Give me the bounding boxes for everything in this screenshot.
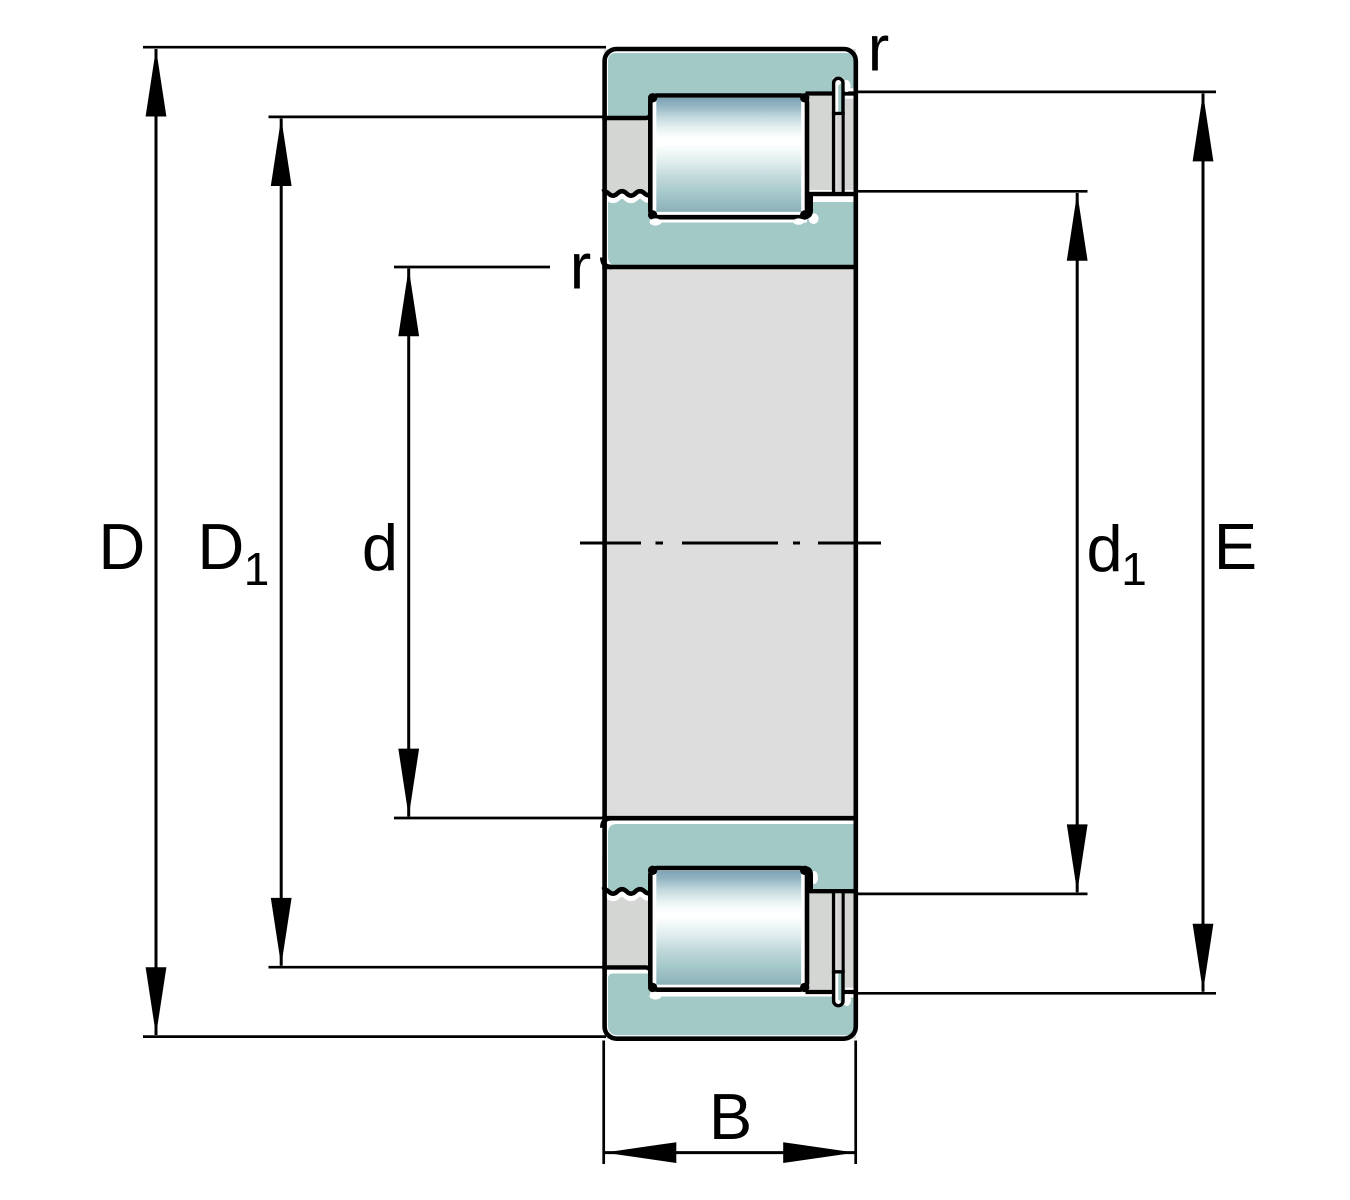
svg-text:1: 1 bbox=[244, 543, 270, 595]
svg-text:B: B bbox=[709, 1080, 752, 1153]
svg-text:r: r bbox=[570, 230, 592, 303]
svg-text:E: E bbox=[1214, 510, 1257, 583]
svg-text:d: d bbox=[362, 511, 398, 584]
svg-text:1: 1 bbox=[1121, 543, 1147, 595]
svg-text:D: D bbox=[197, 510, 244, 583]
svg-text:r: r bbox=[868, 12, 890, 85]
svg-text:D: D bbox=[98, 510, 145, 583]
svg-text:d: d bbox=[1087, 512, 1123, 585]
